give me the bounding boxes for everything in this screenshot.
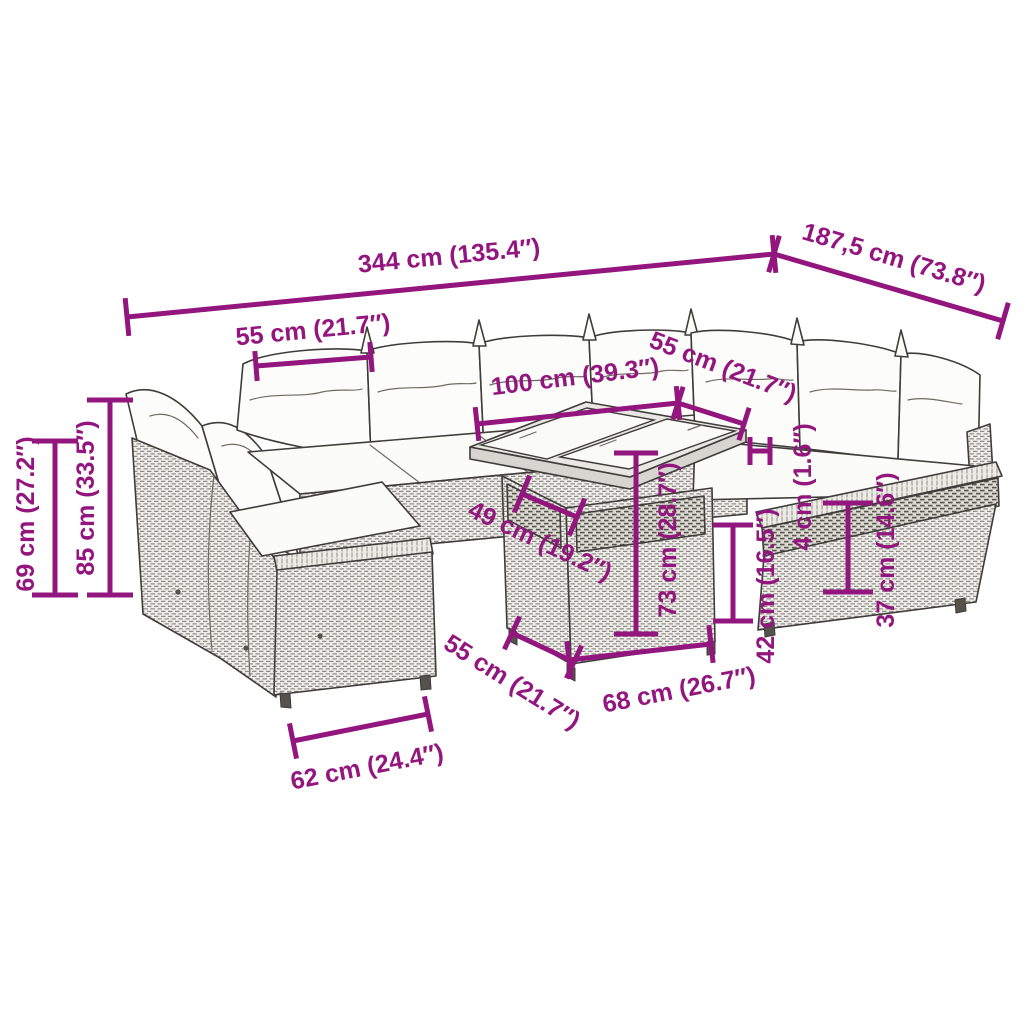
dimension-back-height: 85 cm (33.5″)	[72, 400, 133, 595]
dimension-line	[475, 407, 479, 441]
sofa-leg	[955, 598, 966, 613]
diagram-canvas: 344 cm (135.4″)187,5 cm (73.8″)55 cm (21…	[0, 0, 1024, 1024]
dimension-label: 344 cm (135.4″)	[357, 233, 542, 278]
cushion-tip	[791, 318, 804, 345]
sofa-leg	[420, 675, 431, 690]
cushion-tip	[583, 314, 596, 340]
dimension-label: 69 cm (27.2″)	[12, 436, 40, 591]
dimension-label: 187,5 cm (73.8″)	[799, 218, 989, 299]
dimension-front-seat-depth: 62 cm (24.4″)	[288, 696, 446, 795]
cushion-tip	[685, 309, 698, 335]
cushion-tip	[895, 330, 908, 357]
dimension-diagram: 344 cm (135.4″)187,5 cm (73.8″)55 cm (21…	[0, 0, 1024, 1024]
cushion-tip	[473, 320, 486, 346]
dimension-line	[125, 298, 129, 336]
dimension-label: 37 cm (14.6″)	[872, 472, 900, 627]
dimension-line	[255, 351, 257, 381]
front-seat-panel	[274, 552, 436, 695]
dimension-label: 73 cm (28.7″)	[654, 462, 682, 617]
dimension-seat-height: 69 cm (27.2″)	[12, 436, 78, 595]
dimension-line	[289, 723, 296, 758]
dimension-seat-surface-height: 42 cm (16.5″)	[713, 508, 780, 663]
dimension-line	[293, 714, 428, 741]
dimension-overall-depth: 187,5 cm (73.8″)	[769, 218, 1009, 340]
dimension-overall-length: 344 cm (135.4″)	[125, 233, 776, 336]
dimension-label: 4 cm (1.6″)	[789, 423, 817, 550]
dimension-label: 62 cm (24.4″)	[288, 738, 446, 795]
dimension-label: 68 cm (26.7″)	[600, 661, 758, 718]
dimension-label: 85 cm (33.5″)	[72, 420, 100, 575]
dimension-line	[370, 342, 372, 372]
dimension-label: 42 cm (16.5″)	[752, 508, 780, 663]
dimension-line	[424, 696, 431, 731]
sofa-leg	[280, 693, 291, 708]
